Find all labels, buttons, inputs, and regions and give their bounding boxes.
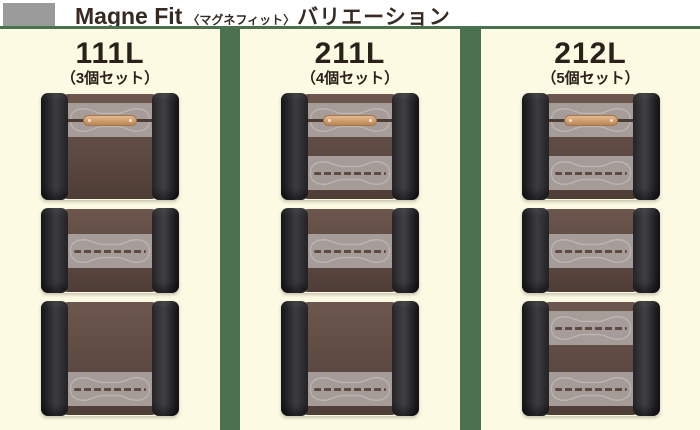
storage-case-photo bbox=[522, 93, 660, 200]
case-flap-band bbox=[545, 156, 637, 190]
brand-tag-icon bbox=[83, 115, 137, 126]
variation-panel-211l: 211L （4個セット） bbox=[240, 29, 460, 430]
set-count-label: （3個セット） bbox=[61, 71, 159, 88]
handle-slot-icon bbox=[74, 250, 146, 253]
case-side-gusset-left bbox=[41, 93, 68, 200]
storage-case-photo bbox=[281, 208, 419, 293]
case-flap-band bbox=[304, 234, 396, 268]
case-flap-band bbox=[64, 234, 156, 268]
case-flap-band bbox=[545, 311, 637, 345]
case-front-panel bbox=[304, 302, 396, 415]
case-side-gusset-left bbox=[41, 208, 68, 293]
green-background: 111L （3個セット） 211L （4個セット） 212L （5個セット） bbox=[0, 26, 700, 430]
model-number: 211L bbox=[315, 38, 386, 70]
storage-case-photo bbox=[41, 301, 179, 416]
magne-fit-variation-banner: Magne Fit 〈マグネフィット〉 バリエーション 111L （3個セット）… bbox=[0, 0, 700, 430]
case-side-gusset-right bbox=[392, 301, 419, 416]
case-side-gusset-left bbox=[522, 93, 549, 200]
case-side-gusset-left bbox=[522, 301, 549, 416]
case-photo-stack bbox=[41, 93, 179, 416]
handle-slot-icon bbox=[314, 388, 386, 391]
case-side-gusset-left bbox=[281, 301, 308, 416]
case-side-gusset-right bbox=[633, 301, 660, 416]
handle-slot-icon bbox=[555, 327, 627, 330]
case-side-gusset-left bbox=[41, 301, 68, 416]
set-count-label: （4個セット） bbox=[301, 71, 399, 88]
storage-case-photo bbox=[522, 208, 660, 293]
case-front-panel bbox=[545, 94, 637, 199]
case-flap-band bbox=[64, 372, 156, 406]
variation-panel-111l: 111L （3個セット） bbox=[0, 29, 220, 430]
storage-case-photo bbox=[281, 93, 419, 200]
case-front-panel bbox=[304, 94, 396, 199]
storage-case-photo bbox=[281, 301, 419, 416]
case-side-gusset-right bbox=[633, 93, 660, 200]
model-number: 212L bbox=[554, 38, 626, 70]
case-side-gusset-right bbox=[152, 301, 179, 416]
case-front-panel bbox=[545, 302, 637, 415]
model-number: 111L bbox=[75, 38, 144, 70]
brand-tag-icon bbox=[564, 115, 618, 126]
header-bar: Magne Fit 〈マグネフィット〉 バリエーション bbox=[0, 0, 700, 26]
header-square-bullet bbox=[3, 3, 55, 26]
storage-case-photo bbox=[41, 208, 179, 293]
handle-slot-icon bbox=[555, 388, 627, 391]
case-side-gusset-right bbox=[392, 208, 419, 293]
case-flap-band bbox=[304, 103, 396, 137]
handle-slot-icon bbox=[555, 250, 627, 253]
handle-slot-icon bbox=[314, 250, 386, 253]
case-flap-band bbox=[545, 372, 637, 406]
case-side-gusset-left bbox=[281, 93, 308, 200]
handle-slot-icon bbox=[555, 172, 627, 175]
case-flap-band bbox=[64, 103, 156, 137]
case-front-panel bbox=[545, 209, 637, 292]
case-front-panel bbox=[304, 209, 396, 292]
case-front-panel bbox=[64, 302, 156, 415]
case-flap-band bbox=[545, 103, 637, 137]
handle-slot-icon bbox=[314, 172, 386, 175]
case-side-gusset-right bbox=[392, 93, 419, 200]
storage-case-photo bbox=[41, 93, 179, 200]
variation-panel-212l: 212L （5個セット） bbox=[481, 29, 700, 430]
case-side-gusset-right bbox=[152, 208, 179, 293]
case-flap-band bbox=[304, 156, 396, 190]
storage-case-photo bbox=[522, 301, 660, 416]
case-side-gusset-left bbox=[281, 208, 308, 293]
case-photo-stack bbox=[281, 93, 419, 416]
case-front-panel bbox=[64, 94, 156, 199]
case-side-gusset-right bbox=[633, 208, 660, 293]
case-side-gusset-right bbox=[152, 93, 179, 200]
case-flap-band bbox=[304, 372, 396, 406]
case-side-gusset-left bbox=[522, 208, 549, 293]
handle-slot-icon bbox=[74, 388, 146, 391]
case-front-panel bbox=[64, 209, 156, 292]
case-photo-stack bbox=[522, 93, 660, 416]
case-flap-band bbox=[545, 234, 637, 268]
brand-tag-icon bbox=[323, 115, 377, 126]
set-count-label: （5個セット） bbox=[541, 71, 639, 88]
